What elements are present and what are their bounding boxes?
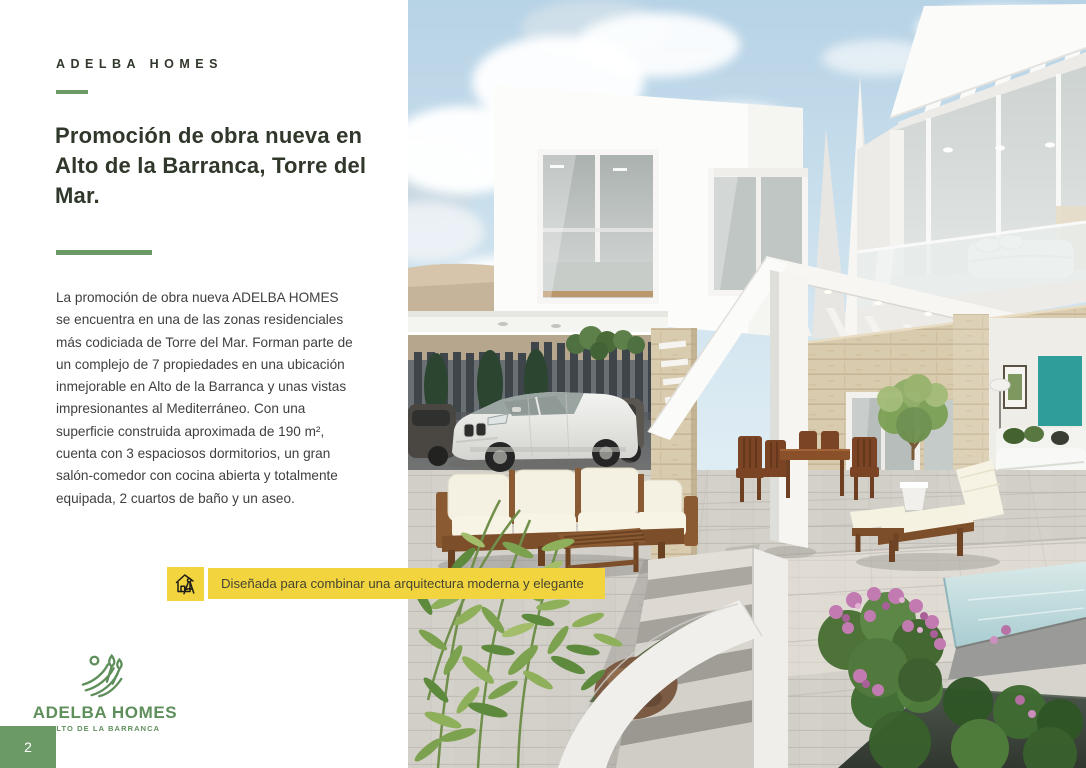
brand-logo: ADELBA HOMES ALTO DE LA BARRANCA — [16, 652, 194, 733]
logo-title: ADELBA HOMES — [16, 703, 194, 723]
field-sprout-icon — [80, 652, 130, 698]
body-paragraph: La promoción de obra nueva ADELBA HOMESs… — [56, 287, 406, 510]
hero-render — [408, 0, 1086, 768]
brand-dash-rule — [56, 90, 88, 94]
highlight-text: Diseñada para combinar una arquitectura … — [221, 576, 584, 591]
step-cheek-wall — [753, 548, 788, 768]
highlight-banner: Diseñada para combinar una arquitectura … — [208, 568, 605, 599]
page-title: Promoción de obra nueva enAlto de la Bar… — [55, 121, 409, 211]
page-number: 2 — [24, 739, 32, 755]
house-compass-icon — [167, 567, 204, 601]
cube-window — [537, 149, 659, 304]
brochure-page: ADELBA HOMES Promoción de obra nueva enA… — [0, 0, 1086, 768]
artwork-teal — [1038, 356, 1082, 426]
title-rule — [56, 250, 152, 255]
dark-sedan — [408, 404, 456, 466]
page-number-tab: 2 — [0, 726, 56, 768]
brand-header: ADELBA HOMES — [56, 57, 223, 71]
